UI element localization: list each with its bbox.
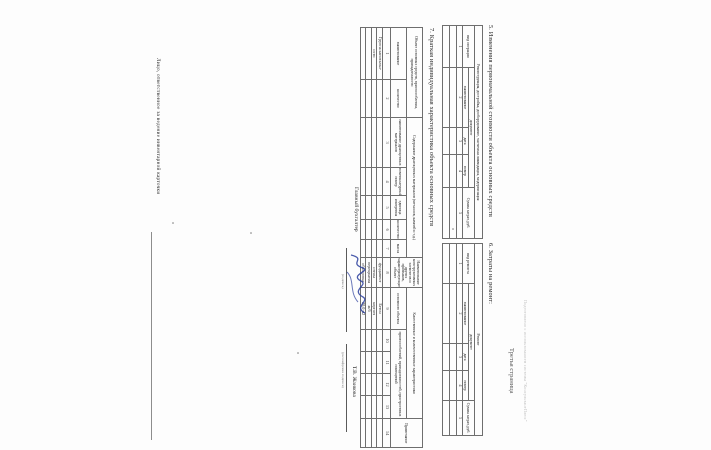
section5-document-group: документ [469, 68, 475, 188]
scan-speck [251, 232, 253, 234]
section7-sub-qty: количество [391, 80, 407, 118]
section7-colnum-5: 5 [383, 196, 391, 220]
section6-col-kind: вид ремонта [463, 244, 475, 284]
section7-sub-name: наименование [391, 28, 407, 80]
section7-row: Группа капитальн- фундамент Бетон [377, 28, 383, 448]
section6-empty-row [450, 244, 457, 436]
section5-span-header: Реконструкция, достройка, дооборудование… [475, 26, 483, 239]
section6-col-date: дата [463, 344, 469, 371]
section7-sub-mass: масса [391, 240, 407, 258]
section6-colnum-4: 4 [457, 371, 463, 401]
section6-col-number: номер [463, 371, 469, 401]
row-element: фундамент [377, 258, 383, 288]
section7-colnum-12: 12 [383, 374, 391, 396]
section5-col-date: дата [463, 128, 469, 155]
section6-colnum-3: 3 [457, 344, 463, 371]
section7-sub-precious-name: наименование драгоценных материалов [391, 118, 407, 168]
section7-row: перекрытия ж/б [366, 28, 372, 448]
section5-col-name: наименование [463, 68, 469, 128]
section7-sub-qty2: количество [391, 220, 407, 240]
section7-group-precious: Содержание драгоценных материалов (метал… [407, 118, 423, 258]
section6-col-name: наименование [463, 284, 469, 344]
section7-group-note: Примечание [391, 419, 423, 448]
scan-speck [298, 352, 300, 354]
section5-colnum-3: 3 [457, 128, 463, 155]
inventory-card-keeper-label: Лицо, ответственное за ведение инвентарн… [155, 58, 161, 194]
row-object-name [361, 28, 367, 80]
section7-colnum-2: 2 [383, 80, 391, 118]
section7-colnum-6: 6 [383, 220, 391, 240]
section7-group-elements: Наименование конструктивных элементов и … [391, 258, 423, 288]
section7-title: 7. Краткая индивидуальная характеристика… [428, 28, 435, 226]
consultantplus-watermark: Подготовлено с использованием системы "К… [523, 300, 528, 422]
section5-empty-row [450, 26, 457, 239]
section7-sub-accessories: приспособлений, принадлежностей, пристро… [391, 330, 407, 419]
signature-caption: (подпись) [341, 274, 345, 289]
section5-colnum-2: 2 [457, 68, 463, 128]
row-object-name: ости [372, 28, 378, 80]
scan-speck [453, 228, 455, 230]
section5-table: Реконструкция, достройка, дооборудование… [442, 25, 483, 239]
section6-document-group: документ [469, 284, 475, 401]
section6-colnum-5: 5 [457, 401, 463, 436]
section7-row: ости стены кирпич [372, 28, 378, 448]
section7-group-object: Объект основных средств, приспособления,… [407, 28, 423, 118]
section7-colnum-10: 10 [383, 330, 391, 352]
section7-group-quality: Качественные и количественные характерис… [407, 288, 423, 419]
section6-title: 6. Затраты на ремонт: [487, 243, 494, 304]
section7-sub-nomenclature: номенклатурный номер [391, 168, 407, 196]
section5-title: 5. Изменения первоначальной стоимости об… [487, 25, 494, 217]
section5-colnum-4: 4 [457, 155, 463, 188]
section7-colnum-11: 11 [383, 352, 391, 374]
section7-colnum-7: 7 [383, 240, 391, 258]
signer-name: Т.В. Жаикова [351, 366, 357, 397]
section7-sub-unit: единица измерения [391, 196, 407, 220]
keeper-signature-line [151, 232, 152, 440]
section6-span-header: Ремонт [475, 244, 483, 436]
section6-col-sum: Сумма затрат, руб. [463, 401, 475, 436]
handwritten-signature [345, 252, 375, 316]
scan-speck [173, 222, 175, 224]
section7-sub-main-object: основного объекта [391, 288, 407, 330]
section7-table: Объект основных средств, приспособления,… [360, 27, 423, 448]
chief-accountant-label: Главный бухгалтер [353, 187, 359, 232]
section6-empty-row [443, 244, 450, 436]
row-object-name [366, 28, 372, 80]
section7-colnum-4: 4 [383, 168, 391, 196]
section7-colnum-13: 13 [383, 396, 391, 419]
page-number-label: Третья страница [508, 348, 515, 394]
section7-colnum-9: 9 [383, 288, 391, 330]
scanned-page-viewport: Подготовлено с использованием системы "К… [0, 0, 711, 450]
row-main-value: Бетон [377, 288, 383, 330]
section5-colnum-5: 5 [457, 188, 463, 239]
section5-col-number: номер [463, 155, 469, 188]
section7-colnum-3: 3 [383, 118, 391, 168]
section7-row: облицовка 20,0 м2 [361, 28, 367, 448]
section6-table: Ремонт вид ремонта документ Сумма затрат… [442, 243, 483, 436]
name-caption: (расшифровка подписи) [341, 352, 345, 388]
section5-col-operation: вид операции [463, 26, 475, 68]
name-line [346, 344, 347, 432]
form-os1-page3-sheet: Подготовлено с использованием системы "К… [0, 0, 711, 450]
row-object-name: Группа капитальн- [377, 28, 383, 80]
section7-colnum-14: 14 [383, 419, 391, 448]
section5-empty-row [443, 26, 450, 239]
section6-colnum-2: 2 [457, 284, 463, 344]
section7-colnum-8: 8 [383, 258, 391, 288]
section6-colnum-1: 1 [457, 244, 463, 284]
section5-colnum-1: 1 [457, 26, 463, 68]
section7-colnum-1: 1 [383, 28, 391, 80]
section5-col-sum: Сумма затрат, руб. [463, 188, 475, 239]
